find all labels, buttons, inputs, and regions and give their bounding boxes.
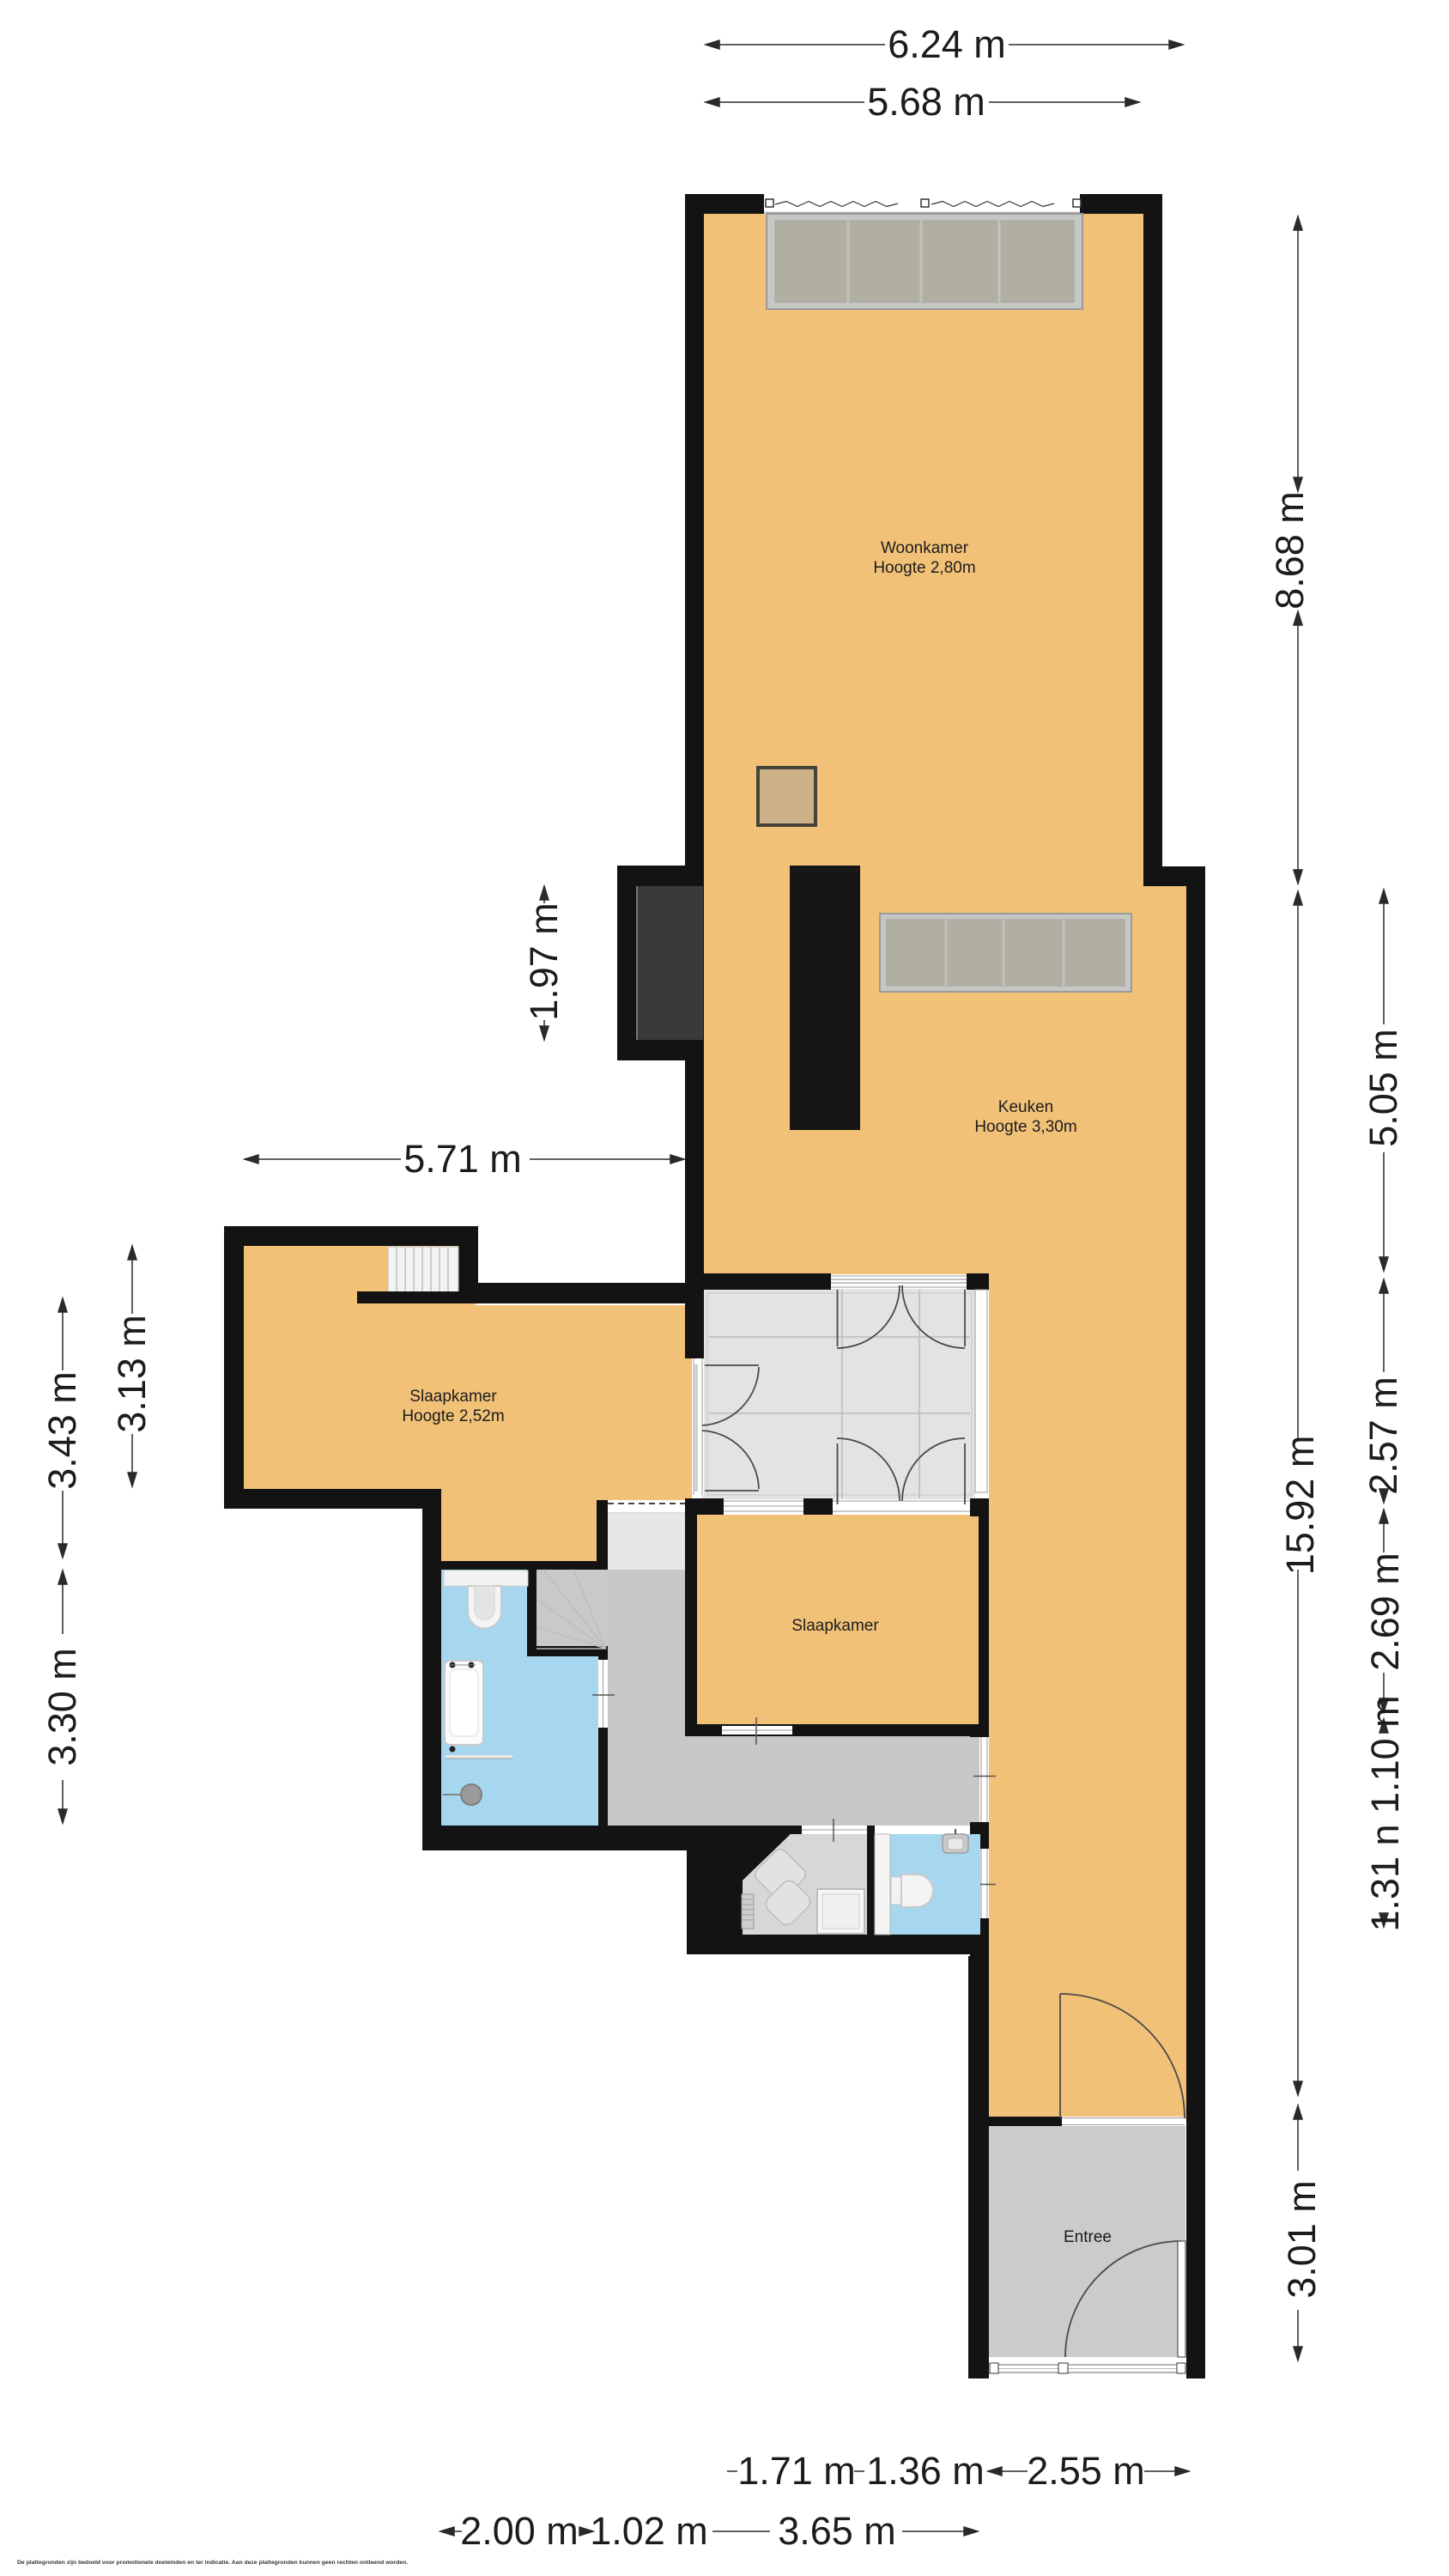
svg-text:2.69 m: 2.69 m xyxy=(1363,1552,1407,1671)
svg-text:1.36 m: 1.36 m xyxy=(866,2449,985,2493)
svg-text:15.92 m: 15.92 m xyxy=(1278,1436,1322,1576)
svg-text:3.65 m: 3.65 m xyxy=(778,2509,896,2553)
svg-text:Keuken: Keuken xyxy=(998,1098,1053,1116)
svg-text:8.68 m: 8.68 m xyxy=(1268,491,1312,610)
svg-text:De plattegronden zijn bedoeld: De plattegronden zijn bedoeld voor promo… xyxy=(17,2560,408,2566)
svg-text:3.13 m: 3.13 m xyxy=(110,1315,154,1433)
svg-text:6.24 m: 6.24 m xyxy=(888,22,1006,66)
svg-text:Hoogte 2,52m: Hoogte 2,52m xyxy=(402,1407,504,1425)
svg-text:5.05 m: 5.05 m xyxy=(1361,1029,1405,1147)
svg-text:Slaapkamer: Slaapkamer xyxy=(791,1617,879,1635)
svg-text:2.55 m: 2.55 m xyxy=(1027,2449,1145,2493)
svg-text:1.97 m: 1.97 m xyxy=(522,902,566,1021)
svg-text:3.01 m: 3.01 m xyxy=(1280,2180,1324,2299)
svg-text:2.00 m: 2.00 m xyxy=(460,2509,579,2553)
svg-text:Slaapkamer: Slaapkamer xyxy=(409,1388,497,1406)
svg-text:3.30 m: 3.30 m xyxy=(40,1648,84,1766)
svg-text:1.02 m: 1.02 m xyxy=(590,2509,708,2553)
svg-text:Hoogte 3,30m: Hoogte 3,30m xyxy=(974,1118,1076,1136)
svg-text:3.43 m: 3.43 m xyxy=(40,1371,84,1490)
svg-text:Hoogte 2,80m: Hoogte 2,80m xyxy=(873,559,975,577)
svg-text:5.71 m: 5.71 m xyxy=(403,1137,522,1181)
svg-text:5.68 m: 5.68 m xyxy=(867,80,985,124)
svg-text:1.71 m: 1.71 m xyxy=(737,2449,856,2493)
svg-text:1.31 n 1.10 m: 1.31 n 1.10 m xyxy=(1363,1695,1407,1931)
svg-text:Woonkamer: Woonkamer xyxy=(881,539,969,557)
svg-text:2.57 m: 2.57 m xyxy=(1361,1376,1405,1495)
svg-text:Entree: Entree xyxy=(1064,2228,1112,2246)
